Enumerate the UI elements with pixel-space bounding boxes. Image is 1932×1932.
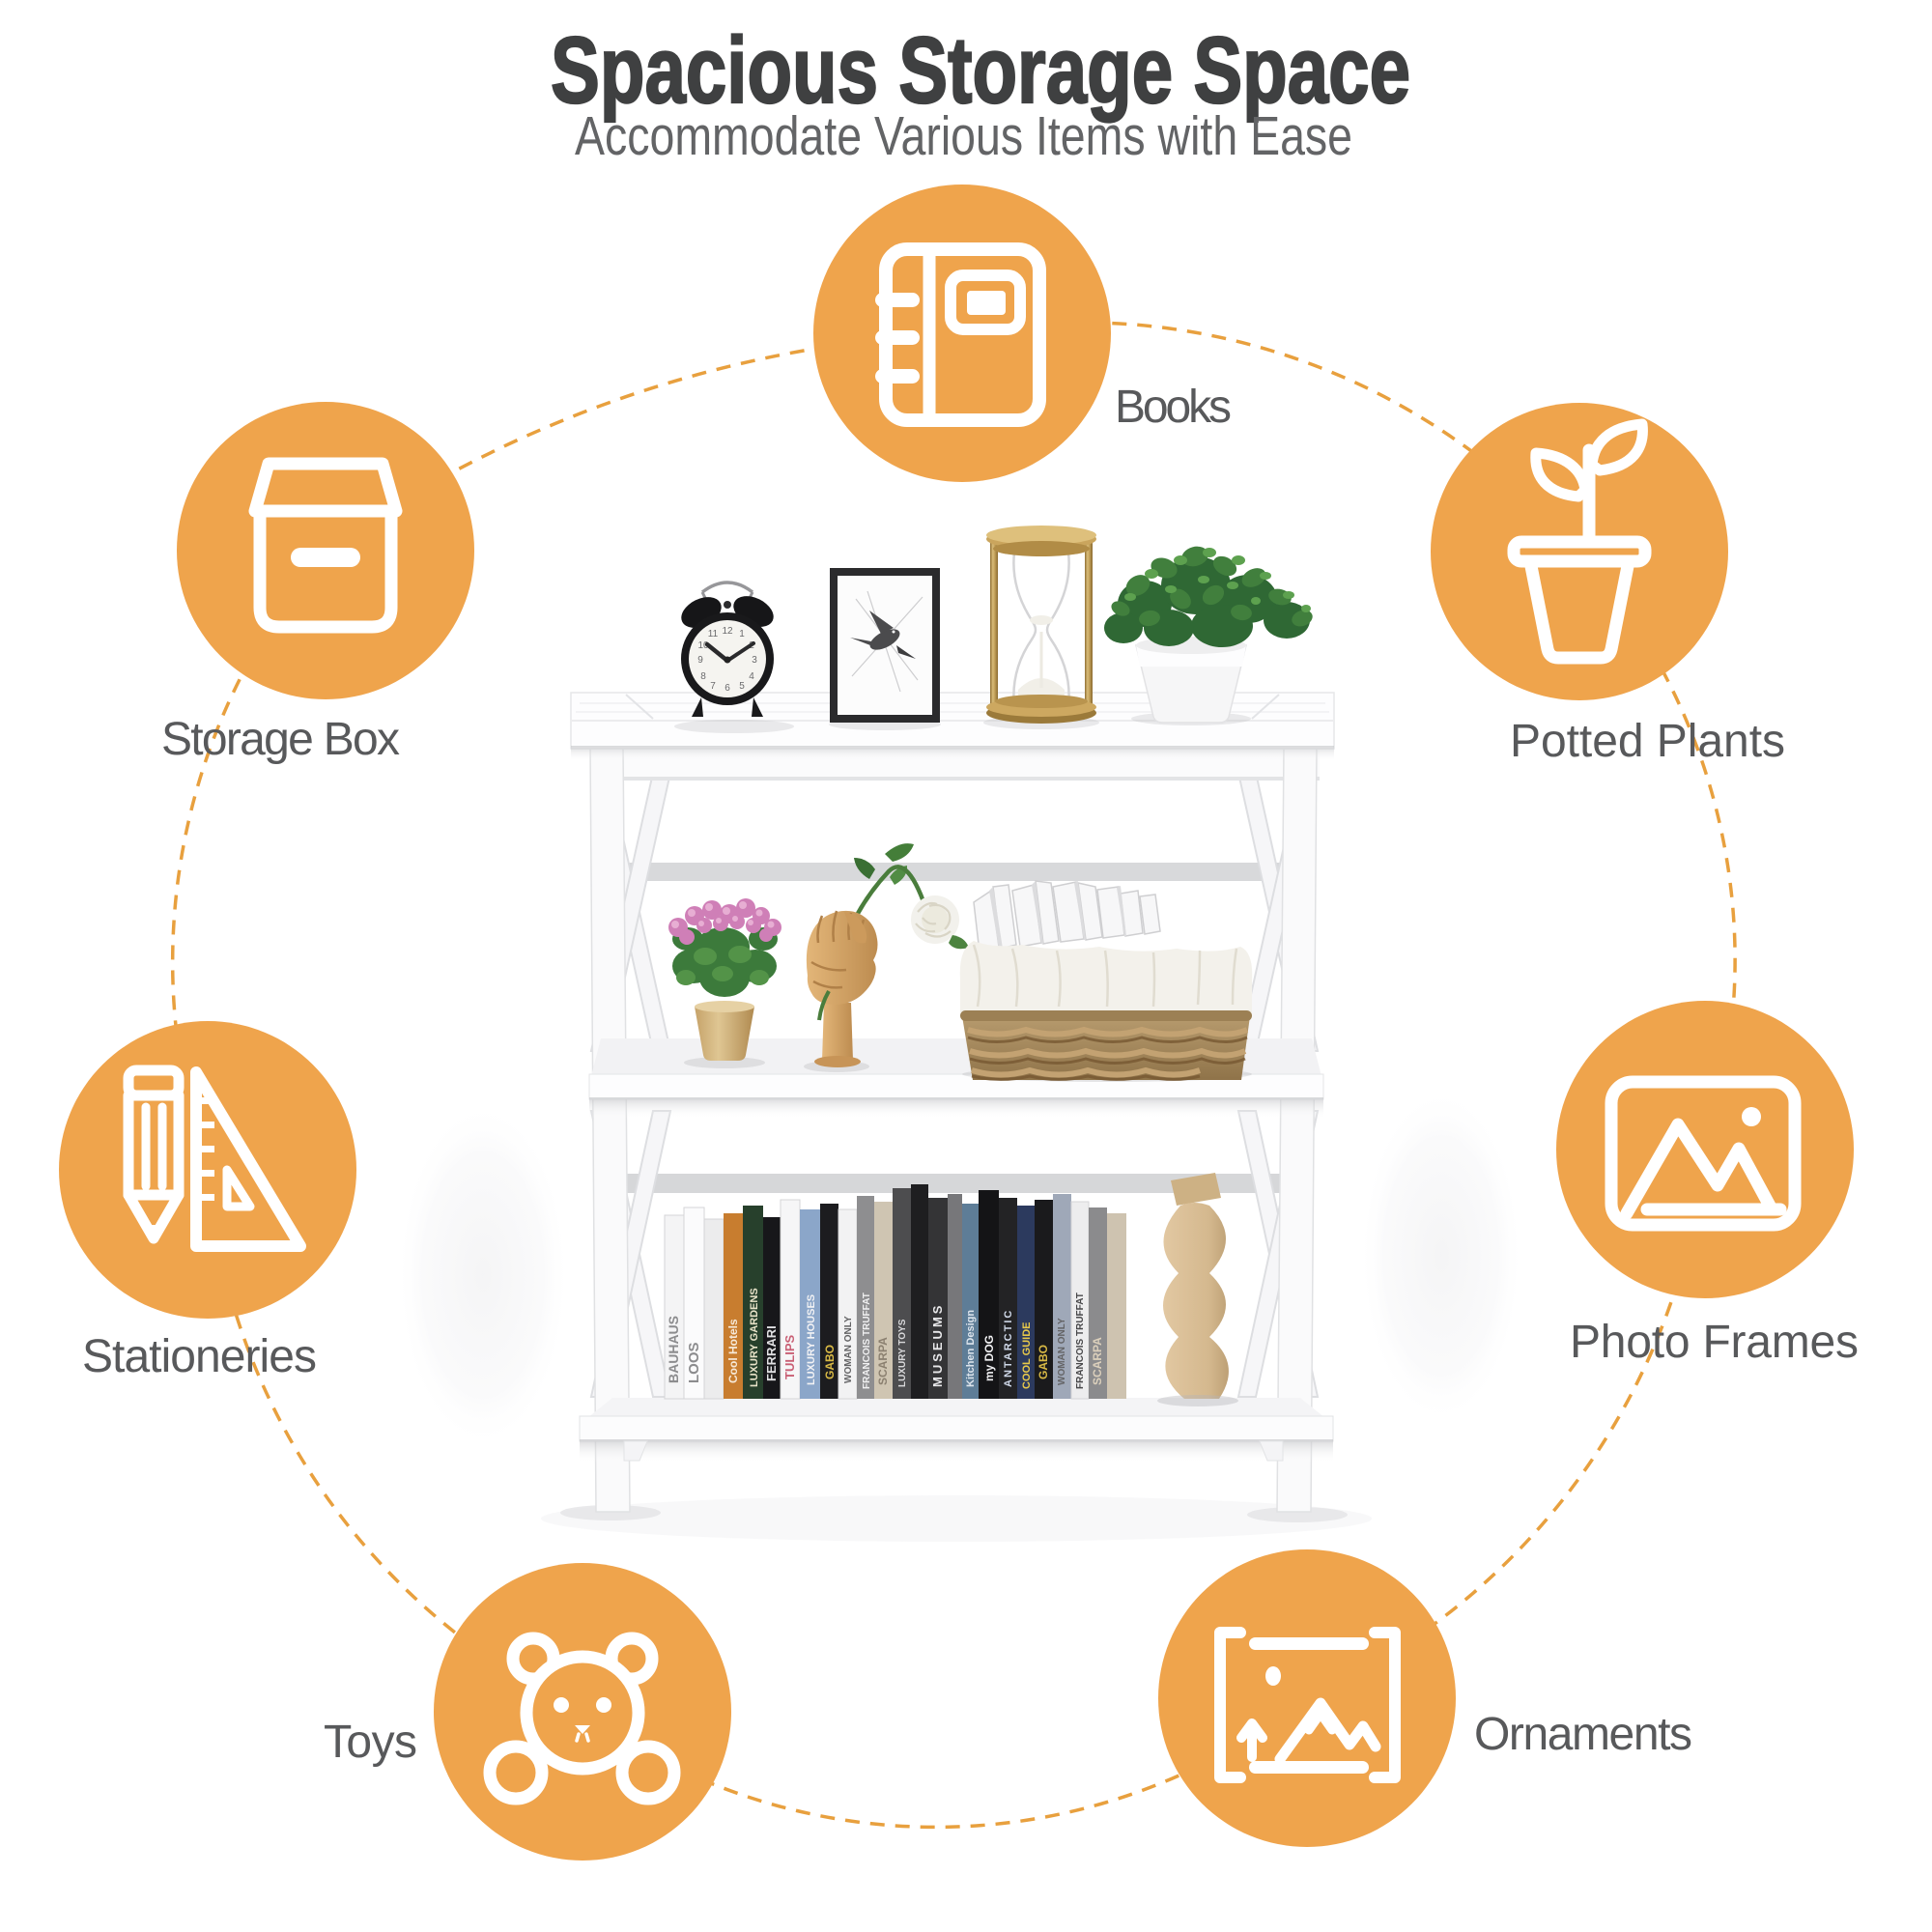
svg-text:Ornaments: Ornaments xyxy=(1474,1709,1692,1760)
svg-text:Cool Hotels: Cool Hotels xyxy=(726,1319,740,1383)
svg-text:Stationeries: Stationeries xyxy=(82,1331,317,1382)
svg-text:LOOS: LOOS xyxy=(686,1342,702,1383)
svg-text:SCARPA: SCARPA xyxy=(1091,1337,1104,1385)
svg-text:7: 7 xyxy=(710,681,716,692)
svg-text:Accommodate Various Items with: Accommodate Various Items with Ease xyxy=(575,105,1352,167)
svg-text:LUXURY TOYS: LUXURY TOYS xyxy=(897,1319,908,1387)
svg-text:12: 12 xyxy=(722,626,733,637)
svg-text:GABO: GABO xyxy=(1037,1345,1050,1379)
svg-text:Storage Box: Storage Box xyxy=(161,714,400,765)
svg-text:3: 3 xyxy=(752,655,757,666)
svg-text:SCARPA: SCARPA xyxy=(876,1337,890,1385)
svg-text:Potted Plants: Potted Plants xyxy=(1510,716,1785,767)
svg-text:Kitchen Design: Kitchen Design xyxy=(965,1310,977,1387)
svg-text:Books: Books xyxy=(1115,382,1232,433)
svg-text:GABO: GABO xyxy=(823,1345,837,1379)
svg-text:WOMAN ONLY: WOMAN ONLY xyxy=(1057,1318,1067,1385)
svg-text:FRANCOIS TRUFFAT: FRANCOIS TRUFFAT xyxy=(862,1293,872,1389)
svg-text:Toys: Toys xyxy=(324,1717,417,1768)
svg-text:LUXURY GARDENS: LUXURY GARDENS xyxy=(749,1288,760,1387)
svg-text:6: 6 xyxy=(724,683,730,694)
svg-text:FERRARI: FERRARI xyxy=(764,1325,779,1381)
svg-text:4: 4 xyxy=(749,671,754,682)
svg-text:11: 11 xyxy=(708,629,719,639)
svg-text:TULIPS: TULIPS xyxy=(782,1334,797,1379)
svg-text:9: 9 xyxy=(697,655,703,666)
svg-text:MUSEUMS: MUSEUMS xyxy=(930,1303,945,1387)
svg-text:COOL GUIDE: COOL GUIDE xyxy=(1021,1322,1033,1389)
svg-text:1: 1 xyxy=(739,629,745,639)
svg-text:my DOG: my DOG xyxy=(982,1335,996,1381)
svg-text:ANTARCTIC: ANTARCTIC xyxy=(1003,1309,1014,1387)
svg-text:WOMAN ONLY: WOMAN ONLY xyxy=(843,1316,854,1383)
svg-text:LUXURY HOUSES: LUXURY HOUSES xyxy=(806,1294,817,1385)
svg-text:FRANCOIS TRUFFAT: FRANCOIS TRUFFAT xyxy=(1075,1293,1086,1389)
svg-text:Photo Frames: Photo Frames xyxy=(1570,1317,1859,1368)
svg-text:5: 5 xyxy=(739,681,745,692)
svg-text:BAUHAUS: BAUHAUS xyxy=(666,1316,681,1383)
svg-text:8: 8 xyxy=(700,671,706,682)
